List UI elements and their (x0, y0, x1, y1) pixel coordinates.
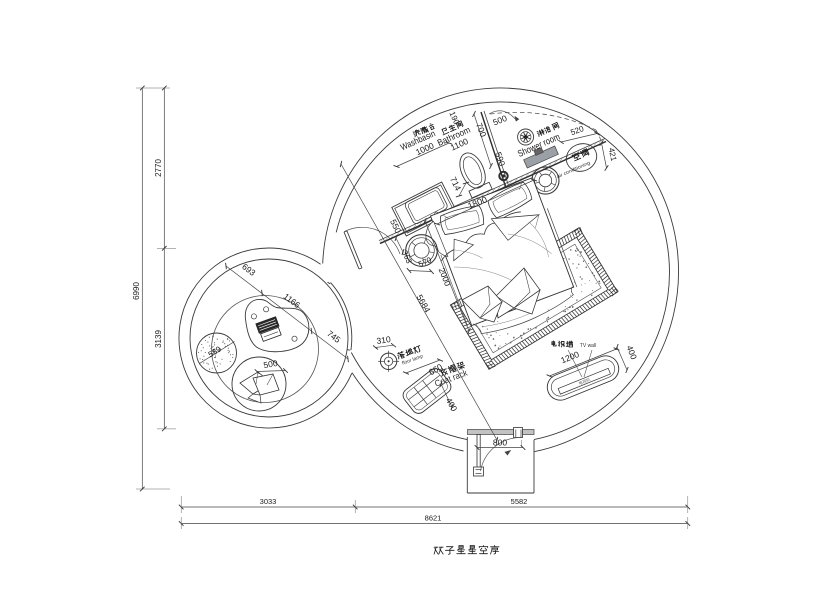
svg-text:2770: 2770 (154, 159, 163, 177)
svg-text:3033: 3033 (260, 497, 277, 506)
svg-text:6990: 6990 (132, 282, 141, 300)
svg-text:800: 800 (493, 438, 507, 448)
svg-text:TV wall: TV wall (580, 343, 596, 349)
svg-text:8621: 8621 (425, 514, 442, 523)
svg-text:3139: 3139 (154, 330, 163, 348)
svg-text:310: 310 (376, 334, 392, 346)
svg-text:5582: 5582 (511, 497, 528, 506)
